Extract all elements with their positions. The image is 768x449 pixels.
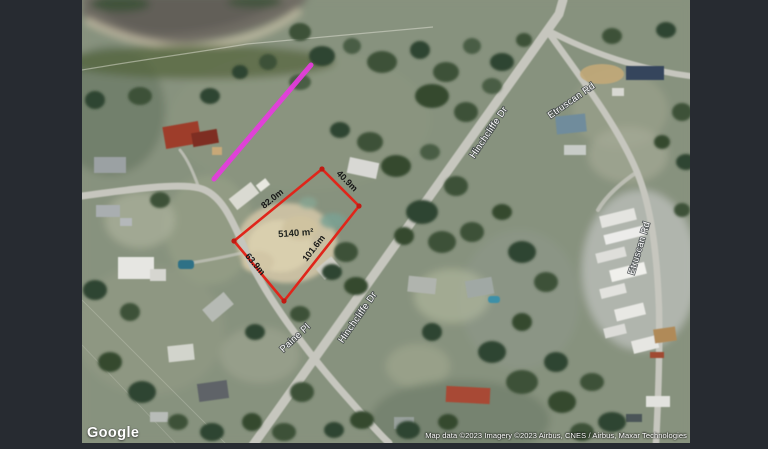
map-attribution: Map data ©2023 Imagery ©2023 Airbus, CNE… (425, 431, 687, 440)
screenshot-stage: 82.0m 40.9m 101.6m 63.9m 5140 m² Hinchcl… (0, 0, 768, 449)
parcel-vertex (319, 166, 324, 171)
parcel-vertex (231, 238, 236, 243)
satellite-map-viewport[interactable]: 82.0m 40.9m 101.6m 63.9m 5140 m² Hinchcl… (82, 0, 690, 443)
parcel-vertex (356, 203, 361, 208)
parcel-vertex (281, 298, 286, 303)
google-logo[interactable]: Google (87, 425, 139, 441)
satellite-imagery: 82.0m 40.9m 101.6m 63.9m 5140 m² Hinchcl… (82, 0, 690, 443)
